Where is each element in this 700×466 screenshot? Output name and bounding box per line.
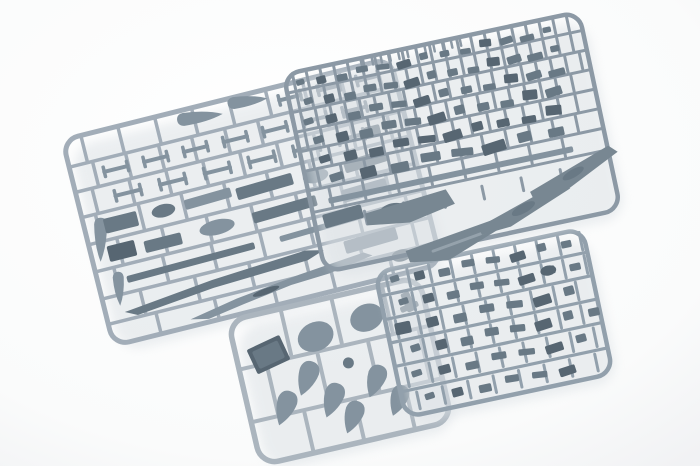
small-part (479, 38, 492, 47)
photo-frame (0, 0, 700, 466)
model-kit-sprues-photo (0, 0, 700, 466)
small-part (522, 89, 538, 100)
small-part (545, 104, 562, 116)
small-part (504, 73, 519, 83)
small-part (486, 57, 500, 67)
